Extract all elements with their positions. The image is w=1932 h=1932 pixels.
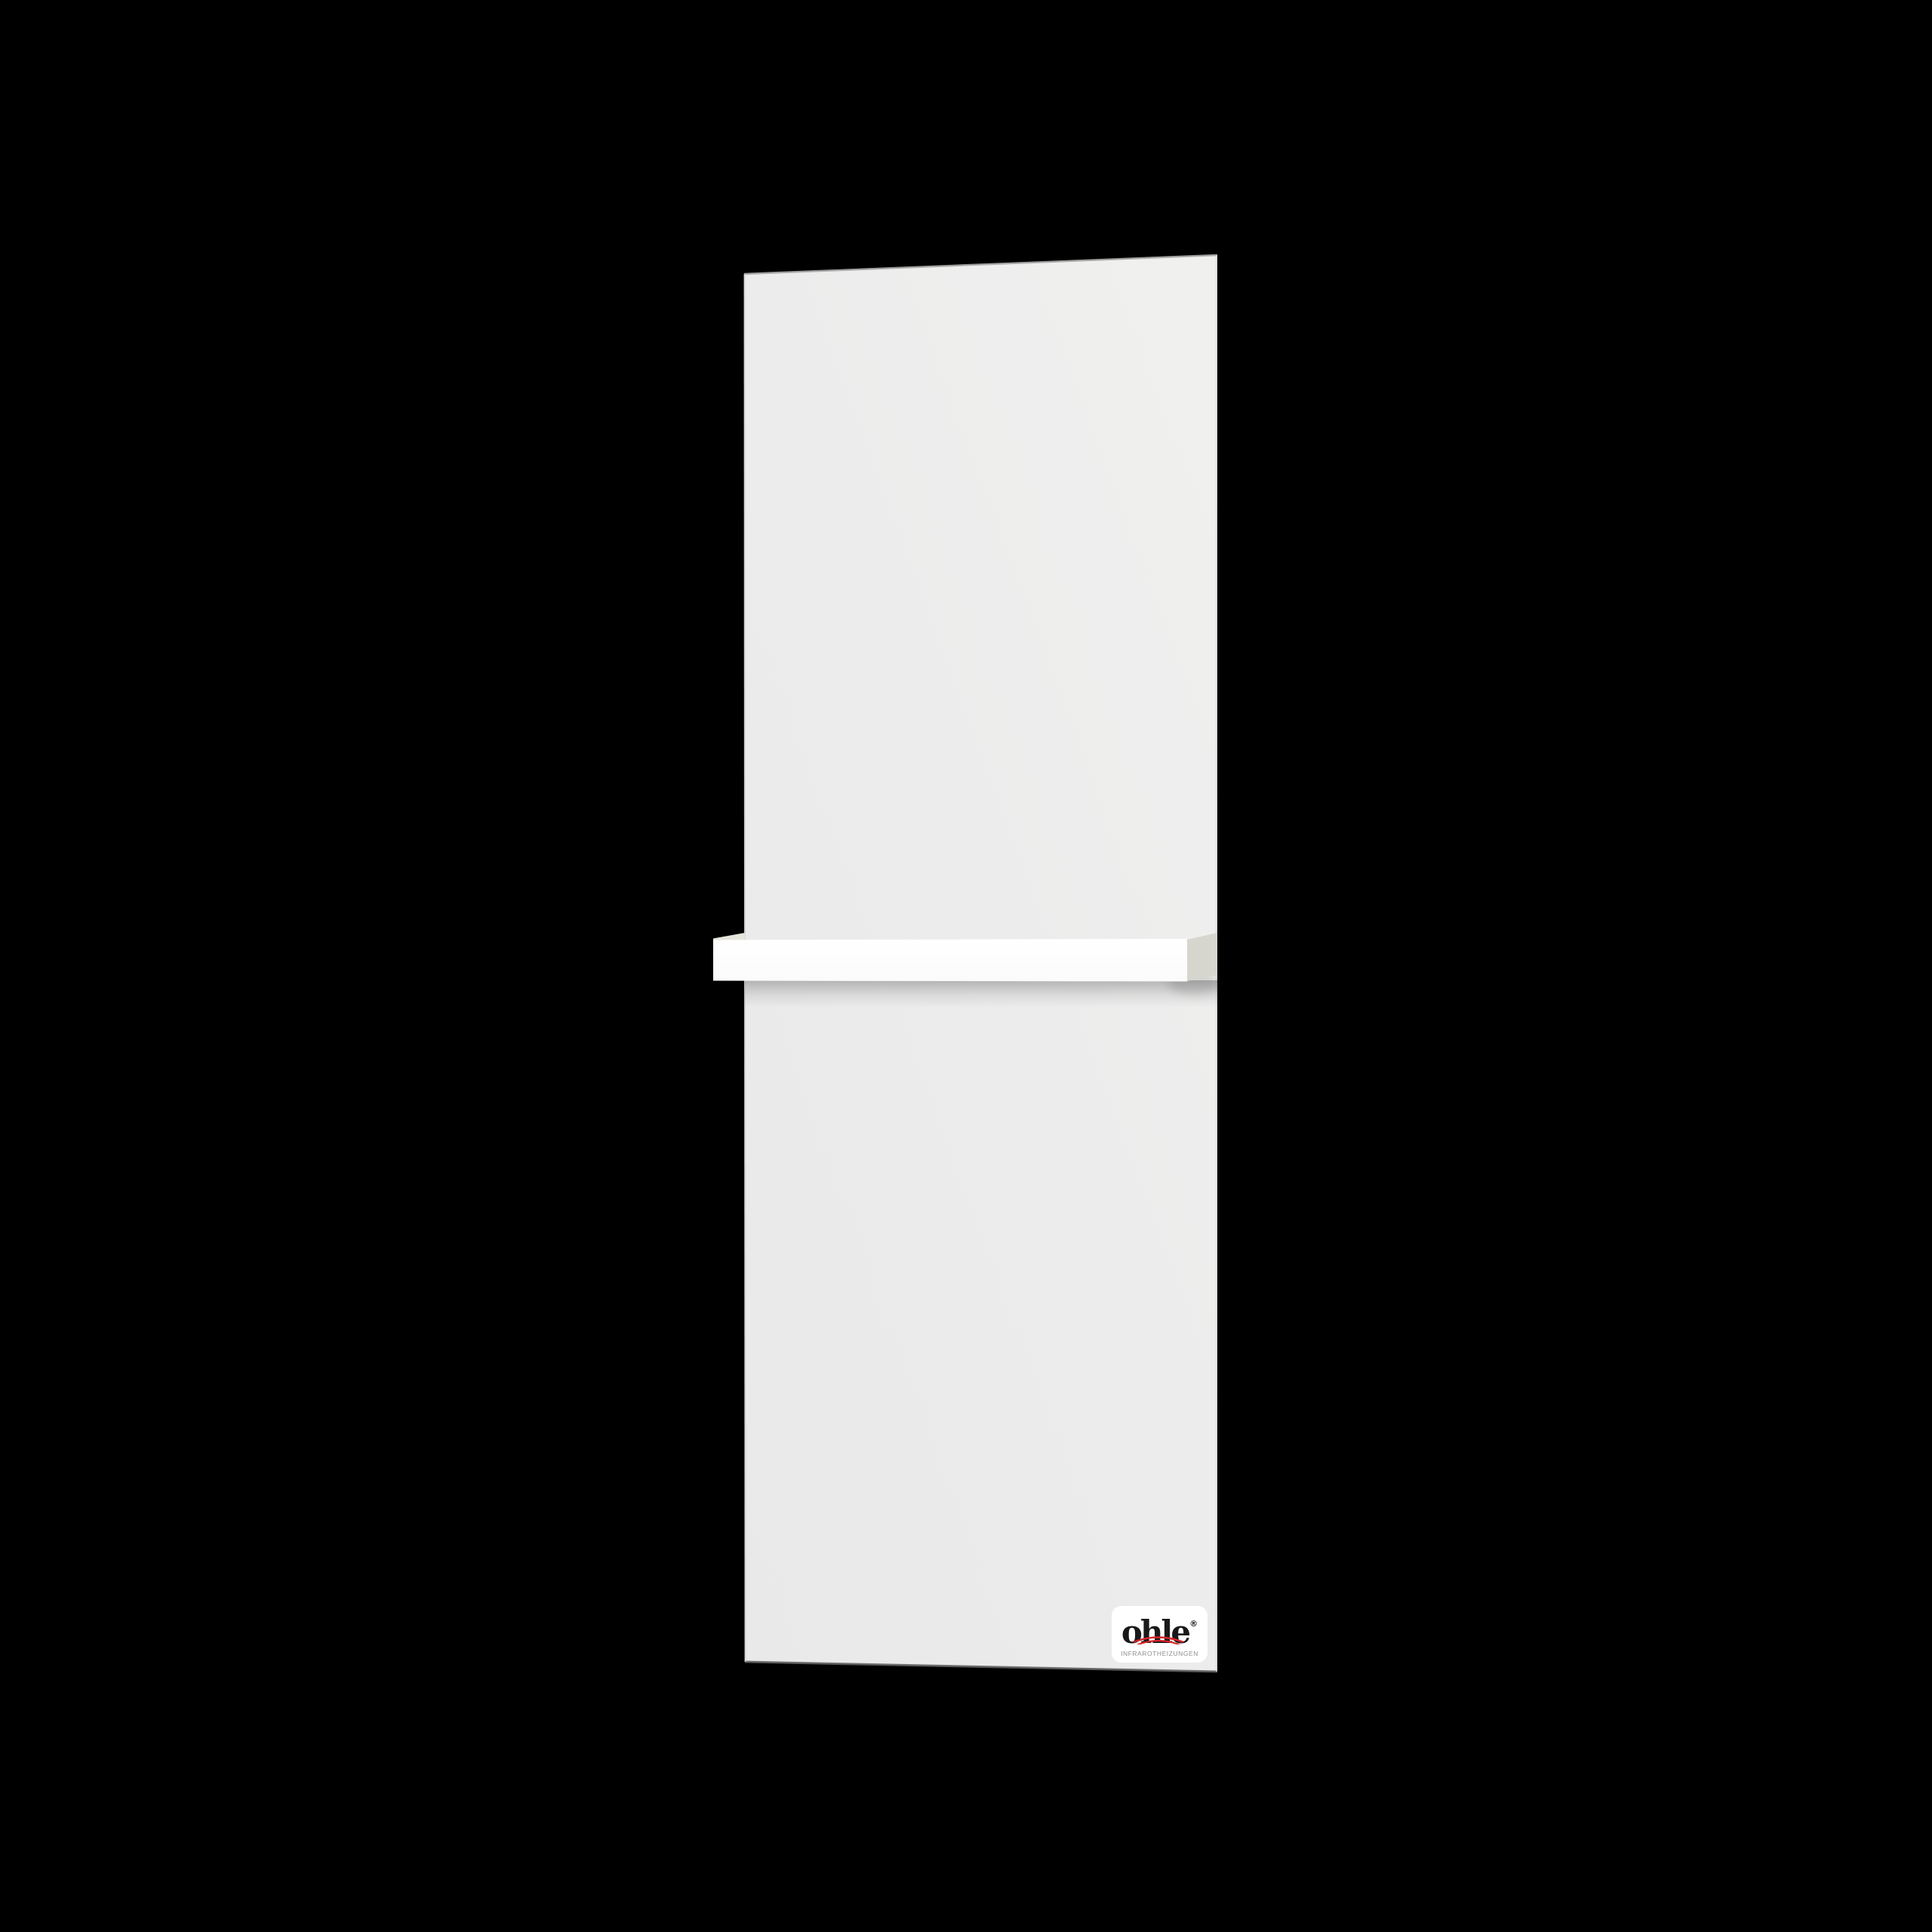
logo-arc-icon: [1134, 1634, 1183, 1644]
towel-bar-shadow: [745, 980, 1217, 1008]
ohle-logo-card: ohle® INFRAROTHEIZUNGEN: [1112, 1606, 1207, 1663]
product-photo-stage: ohle® INFRAROTHEIZUNGEN: [0, 0, 1932, 1932]
towel-bar: [713, 939, 1187, 982]
heating-panel-scene: [0, 0, 1932, 1932]
logo-tagline: INFRAROTHEIZUNGEN: [1112, 1650, 1207, 1657]
registered-mark: ®: [1189, 1619, 1198, 1629]
towel-bar-side-face-shade: [1187, 933, 1217, 981]
brand-name: ohle: [1121, 1614, 1189, 1651]
towel-bar-top-face: [713, 933, 745, 940]
